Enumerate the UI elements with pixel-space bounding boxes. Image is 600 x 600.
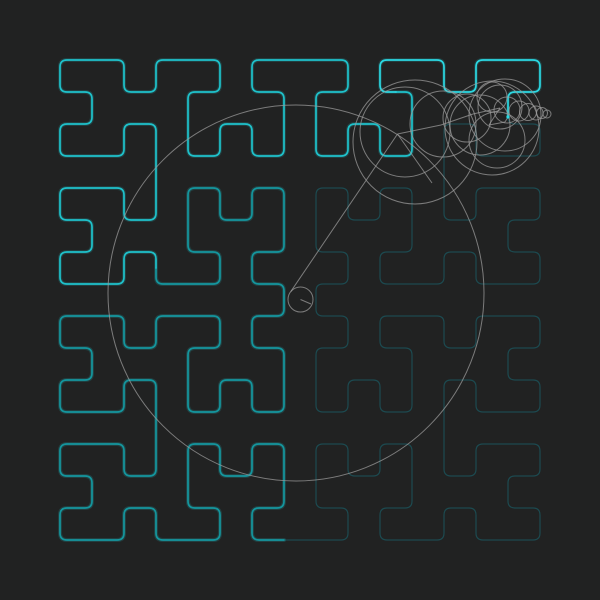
fourier-hilbert-visualization [0,0,600,600]
hilbert-trail-glow [60,60,540,540]
epicycle-radius-line [489,122,505,125]
pen-tip-dot [506,115,509,118]
epicycle-radius-line [398,125,442,134]
epicycle-circle [478,85,522,129]
epicycle-main-circle [108,105,484,481]
scene-canvas [0,0,600,600]
epicycle-group [108,79,551,481]
epicycle-radius-line [301,300,312,305]
hilbert-loop-faint [60,60,540,540]
epicycle-circle [450,95,510,155]
